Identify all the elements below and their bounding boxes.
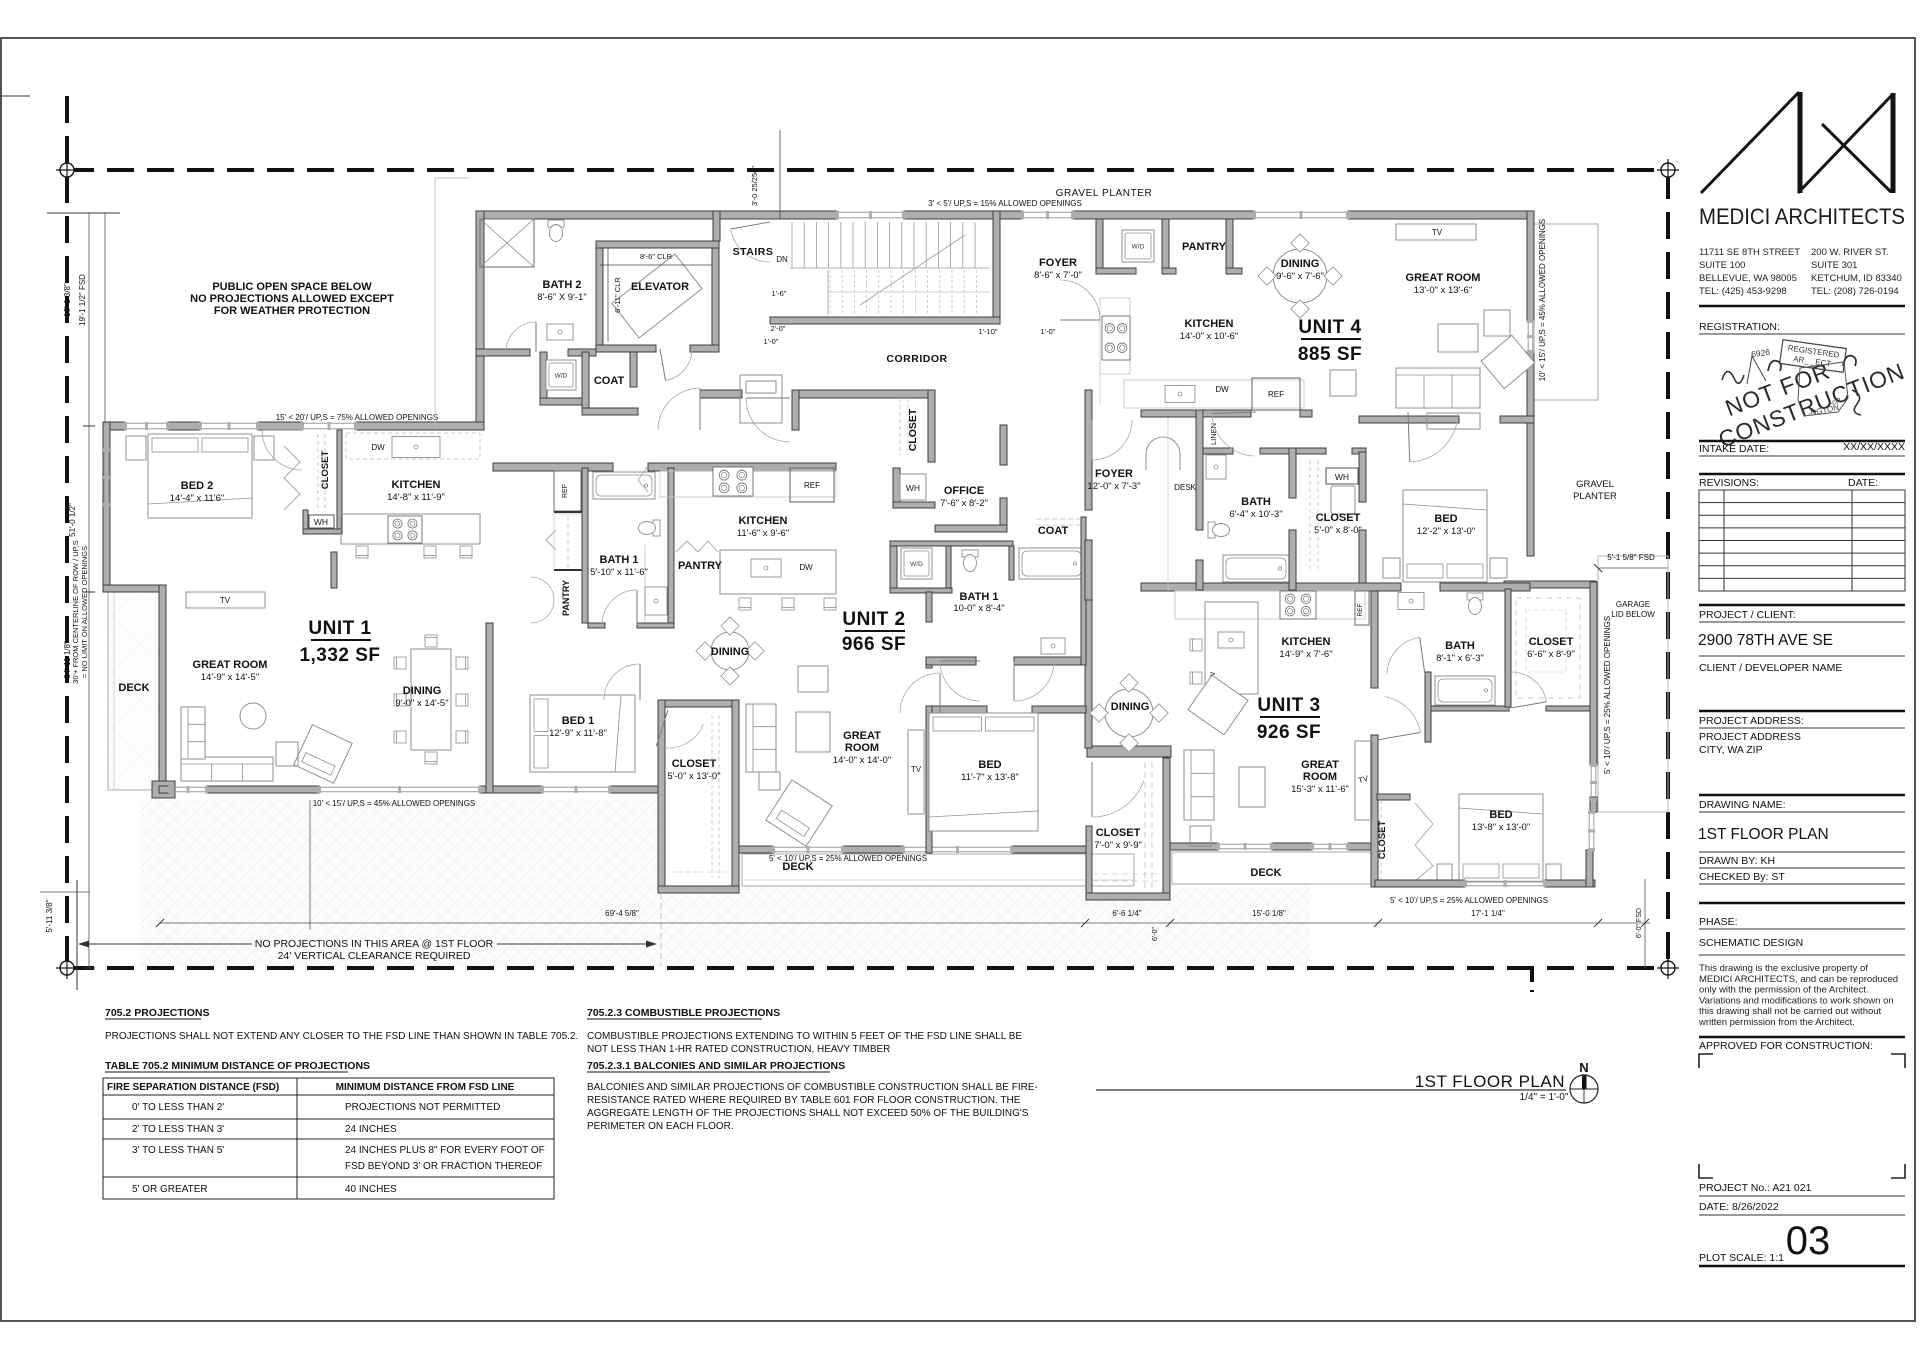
svg-text:8'-6" X 9'-1": 8'-6" X 9'-1" <box>537 292 586 303</box>
svg-text:COMBUSTIBLE PROJECTIONS EXTEND: COMBUSTIBLE PROJECTIONS EXTENDING TO WIT… <box>587 1031 1022 1042</box>
svg-text:FSD BEYOND 3' OR FRACTION THER: FSD BEYOND 3' OR FRACTION THEREOF <box>345 1161 542 1172</box>
svg-text:BATH: BATH <box>1445 640 1475 652</box>
svg-text:5'-11 3/8": 5'-11 3/8" <box>45 899 54 932</box>
svg-text:PANTRY: PANTRY <box>1182 241 1227 253</box>
svg-text:PROJECT No.: A21 021: PROJECT No.: A21 021 <box>1699 1182 1812 1194</box>
svg-text:14'-9" x 7'-6": 14'-9" x 7'-6" <box>1279 649 1332 660</box>
svg-text:BALCONIES AND SIMILAR PROJECTI: BALCONIES AND SIMILAR PROJECTIONS OF COM… <box>587 1082 1038 1093</box>
svg-text:MEDICI ARCHITECTS, and can be: MEDICI ARCHITECTS, and can be reproduced <box>1699 974 1898 985</box>
svg-text:DW: DW <box>799 563 813 572</box>
svg-text:TEL: (425) 453-9298: TEL: (425) 453-9298 <box>1699 286 1787 297</box>
svg-text:1'-0": 1'-0" <box>1041 327 1056 336</box>
svg-text:9'-6" x 7'-6": 9'-6" x 7'-6" <box>1276 271 1324 282</box>
svg-text:GRAVEL PLANTER: GRAVEL PLANTER <box>1056 188 1153 199</box>
svg-text:3' < 5'/ UP,S = 15% ALLOWED OP: 3' < 5'/ UP,S = 15% ALLOWED OPENINGS <box>928 199 1082 208</box>
svg-text:OFFICE: OFFICE <box>944 485 984 497</box>
svg-text:UNIT 4: UNIT 4 <box>1298 317 1361 338</box>
svg-text:5' OR GREATER: 5' OR GREATER <box>132 1184 208 1195</box>
svg-text:CLIENT / DEVELOPER NAME: CLIENT / DEVELOPER NAME <box>1699 662 1842 674</box>
svg-text:7'-6" x 8'-2": 7'-6" x 8'-2" <box>940 498 988 509</box>
svg-text:CLOSET: CLOSET <box>672 758 717 770</box>
svg-text:NOT LESS THAN 1-HR RATED CONST: NOT LESS THAN 1-HR RATED CONSTRUCTION, H… <box>587 1044 890 1055</box>
svg-text:DW: DW <box>371 443 385 452</box>
svg-text:PANTRY: PANTRY <box>678 560 723 572</box>
svg-text:INTAKE DATE:: INTAKE DATE: <box>1699 443 1769 455</box>
svg-text:AGGREGATE LENGTH OF THE PROJEC: AGGREGATE LENGTH OF THE PROJECTIONS SHAL… <box>587 1108 1029 1119</box>
svg-text:PHASE:: PHASE: <box>1699 916 1738 928</box>
svg-text:1ST FLOOR PLAN: 1ST FLOOR PLAN <box>1698 826 1829 843</box>
svg-text:40 INCHES: 40 INCHES <box>345 1184 397 1195</box>
svg-text:LID BELOW: LID BELOW <box>1611 610 1655 619</box>
svg-text:KITCHEN: KITCHEN <box>1282 636 1331 648</box>
svg-text:written permission from the Ar: written permission from the Architect. <box>1698 1017 1855 1028</box>
svg-text:DATE:: DATE: <box>1848 477 1878 489</box>
svg-text:GRAVEL: GRAVEL <box>1576 479 1614 490</box>
svg-text:PROJECT / CLIENT:: PROJECT / CLIENT: <box>1699 609 1796 621</box>
svg-text:24' VERTICAL CLEARANCE REQUIRE: 24' VERTICAL CLEARANCE REQUIRED <box>278 950 471 962</box>
svg-text:This drawing is the exclusive: This drawing is the exclusive property o… <box>1699 963 1868 974</box>
svg-text:14'-8" x 11'-9": 14'-8" x 11'-9" <box>387 492 445 503</box>
svg-text:6'-6" x 8'-9": 6'-6" x 8'-9" <box>1527 649 1575 660</box>
svg-text:BATH 1: BATH 1 <box>960 591 999 603</box>
svg-text:12'-0" x 7'-3": 12'-0" x 7'-3" <box>1087 481 1140 492</box>
svg-text:24 INCHES PLUS 8" FOR EVERY FO: 24 INCHES PLUS 8" FOR EVERY FOOT OF <box>345 1145 545 1156</box>
svg-text:2900 78TH AVE SE: 2900 78TH AVE SE <box>1698 632 1833 649</box>
svg-text:966 SF: 966 SF <box>842 634 906 655</box>
svg-text:UNIT 1: UNIT 1 <box>308 618 371 639</box>
svg-text:Variations and modifications t: Variations and modifications to work sho… <box>1699 995 1894 1006</box>
svg-text:3'-0 25/256": 3'-0 25/256" <box>750 166 759 206</box>
svg-text:12'-9" x 11'-8": 12'-9" x 11'-8" <box>549 728 607 739</box>
svg-text:17'-1 1/4": 17'-1 1/4" <box>1471 909 1505 918</box>
svg-text:10-0" x 8'-4": 10-0" x 8'-4" <box>953 603 1004 614</box>
svg-text:= NO LIMIT ON ALLOWED OPENINGS: = NO LIMIT ON ALLOWED OPENINGS <box>80 546 89 678</box>
svg-text:GARAGE: GARAGE <box>1616 600 1650 609</box>
svg-text:15' < 20'/ UP,S = 75% ALLOWED: 15' < 20'/ UP,S = 75% ALLOWED OPENINGS <box>276 413 439 422</box>
svg-text:5' < 10'/ UP,S = 25% ALLOWED O: 5' < 10'/ UP,S = 25% ALLOWED OPENINGS <box>1390 896 1548 905</box>
svg-text:W/D: W/D <box>910 561 923 568</box>
svg-text:FOYER: FOYER <box>1039 257 1077 269</box>
svg-text:UNIT 2: UNIT 2 <box>842 609 905 630</box>
svg-text:15'-0 1/8": 15'-0 1/8" <box>1252 909 1286 918</box>
svg-text:SUITE 301: SUITE 301 <box>1811 260 1857 271</box>
svg-text:WH: WH <box>314 517 328 527</box>
svg-text:BED: BED <box>978 759 1001 771</box>
svg-text:ROOM: ROOM <box>845 742 879 754</box>
svg-text:MINIMUM DISTANCE FROM FSD LINE: MINIMUM DISTANCE FROM FSD LINE <box>336 1082 515 1093</box>
svg-text:705.2.3 COMBUSTIBLE PROJECTION: 705.2.3 COMBUSTIBLE PROJECTIONS <box>587 1007 780 1019</box>
svg-text:PERIMETER ON EACH FLOOR.: PERIMETER ON EACH FLOOR. <box>587 1121 734 1132</box>
svg-text:REF: REF <box>562 484 569 498</box>
svg-text:PROJECTIONS NOT PERMITTED: PROJECTIONS NOT PERMITTED <box>345 1102 500 1113</box>
svg-text:14'-9" x 14'-5": 14'-9" x 14'-5" <box>201 672 259 683</box>
svg-text:only with the permission of th: only with the permission of the Architec… <box>1699 985 1869 996</box>
svg-text:CLOSET: CLOSET <box>907 408 919 451</box>
svg-text:6'-6 1/4": 6'-6 1/4" <box>1112 909 1141 918</box>
svg-text:5'-1 5/8" FSD: 5'-1 5/8" FSD <box>1607 553 1655 562</box>
svg-text:BELLEVUE, WA 98005: BELLEVUE, WA 98005 <box>1699 273 1797 284</box>
svg-text:CLOSET: CLOSET <box>320 451 331 490</box>
svg-text:PROJECT ADDRESS: PROJECT ADDRESS <box>1699 731 1801 743</box>
svg-text:16'-1 3/8": 16'-1 3/8" <box>63 283 72 317</box>
svg-text:13'-0" x 13'-6": 13'-0" x 13'-6" <box>1414 285 1472 296</box>
svg-text:APPROVED FOR CONSTRUCTION:: APPROVED FOR CONSTRUCTION: <box>1699 1040 1873 1052</box>
svg-text:11711 SE 8TH STREET: 11711 SE 8TH STREET <box>1699 247 1800 258</box>
svg-text:REF: REF <box>1268 390 1284 399</box>
svg-text:DINING: DINING <box>403 685 442 697</box>
svg-text:CITY, WA ZIP: CITY, WA ZIP <box>1699 744 1763 756</box>
svg-text:TV: TV <box>1432 228 1443 237</box>
svg-text:BATH: BATH <box>1241 496 1271 508</box>
svg-text:MEDICI ARCHITECTS: MEDICI ARCHITECTS <box>1699 204 1905 229</box>
svg-text:15'-3" x 11'-6": 15'-3" x 11'-6" <box>1291 784 1349 795</box>
svg-text:COAT: COAT <box>594 375 625 387</box>
svg-text:14'-0" x 10'-6": 14'-0" x 10'-6" <box>1180 331 1238 342</box>
svg-text:REF: REF <box>1357 603 1364 616</box>
svg-text:STAIRS: STAIRS <box>733 246 774 258</box>
svg-text:NO PROJECTIONS ALLOWED EXCEPT: NO PROJECTIONS ALLOWED EXCEPT <box>190 293 394 305</box>
svg-text:10' < 15'/ UP,S = 45% ALLOWED: 10' < 15'/ UP,S = 45% ALLOWED OPENINGS <box>313 799 476 808</box>
svg-text:SUITE 100: SUITE 100 <box>1699 260 1745 271</box>
svg-text:DRAWING NAME:: DRAWING NAME: <box>1699 799 1786 811</box>
svg-text:LINEN: LINEN <box>1209 423 1218 445</box>
svg-text:KITCHEN: KITCHEN <box>392 479 441 491</box>
svg-text:8'-1" x 6'-3": 8'-1" x 6'-3" <box>1436 653 1484 664</box>
svg-text:ELEVATOR: ELEVATOR <box>631 281 689 293</box>
svg-text:9'-0" x 14'-5": 9'-0" x 14'-5" <box>395 698 448 709</box>
svg-text:5'-10" x 11'-6": 5'-10" x 11'-6" <box>590 567 648 578</box>
svg-text:5'-0" x 8'-0": 5'-0" x 8'-0" <box>1314 525 1362 536</box>
svg-text:12'-2" x 13'-0": 12'-2" x 13'-0" <box>1417 526 1475 537</box>
svg-text:1ST FLOOR PLAN: 1ST FLOOR PLAN <box>1415 1072 1565 1091</box>
svg-text:PROJECT ADDRESS:: PROJECT ADDRESS: <box>1699 715 1804 727</box>
svg-text:this drawing shall not be carr: this drawing shall not be carried out wi… <box>1699 1006 1882 1017</box>
svg-text:FOYER: FOYER <box>1095 468 1133 480</box>
svg-text:03: 03 <box>1786 1219 1831 1263</box>
svg-text:CLOSET: CLOSET <box>1377 821 1388 860</box>
svg-text:UNIT 3: UNIT 3 <box>1257 695 1320 716</box>
svg-text:6'-4" x 10'-3": 6'-4" x 10'-3" <box>1229 509 1282 520</box>
svg-text:FOR WEATHER PROTECTION: FOR WEATHER PROTECTION <box>214 305 370 317</box>
svg-text:DW: DW <box>1215 385 1229 394</box>
svg-text:1/4" = 1'-0": 1/4" = 1'-0" <box>1520 1092 1569 1103</box>
svg-text:8'-6" CLR: 8'-6" CLR <box>640 252 673 261</box>
svg-text:24 INCHES: 24 INCHES <box>345 1124 397 1135</box>
svg-text:REF: REF <box>804 481 820 490</box>
svg-text:GREAT ROOM: GREAT ROOM <box>193 659 268 671</box>
svg-text:CLOSET: CLOSET <box>1316 512 1361 524</box>
svg-text:1'-6": 1'-6" <box>772 289 787 298</box>
svg-text:TV: TV <box>911 765 922 774</box>
svg-text:19'-1 1/2" FSD: 19'-1 1/2" FSD <box>78 274 87 326</box>
svg-text:RESISTANCE RATED WHERE REQUIRE: RESISTANCE RATED WHERE REQUIRED BY TABLE… <box>587 1095 1021 1106</box>
svg-text:PROJECTIONS SHALL NOT EXTEND A: PROJECTIONS SHALL NOT EXTEND ANY CLOSER … <box>105 1031 578 1042</box>
svg-text:PUBLIC OPEN SPACE BELOW: PUBLIC OPEN SPACE BELOW <box>212 281 372 293</box>
svg-text:KITCHEN: KITCHEN <box>1185 318 1234 330</box>
svg-text:5' < 10'/ UP,S = 25% ALLOWED O: 5' < 10'/ UP,S = 25% ALLOWED OPENINGS <box>1603 616 1612 774</box>
svg-text:BED: BED <box>1434 513 1457 525</box>
svg-text:COAT: COAT <box>1038 525 1069 537</box>
svg-text:REVISIONS:: REVISIONS: <box>1699 477 1759 489</box>
svg-text:6'-11" CLR: 6'-11" CLR <box>613 277 622 313</box>
svg-text:DINING: DINING <box>1281 258 1320 270</box>
svg-text:0' TO LESS THAN 2': 0' TO LESS THAN 2' <box>132 1102 224 1113</box>
svg-text:6'-0": 6'-0" <box>1152 927 1159 941</box>
svg-text:DECK: DECK <box>1250 867 1281 879</box>
svg-text:14'-0" x 14'-0": 14'-0" x 14'-0" <box>833 755 891 766</box>
svg-text:BED: BED <box>1489 809 1512 821</box>
svg-text:DESK: DESK <box>1174 483 1196 492</box>
svg-text:DRAWN BY: KH: DRAWN BY: KH <box>1699 855 1775 867</box>
svg-text:BED 1: BED 1 <box>562 715 594 727</box>
svg-text:30'+ FROM CENTERLINE OF ROW /: 30'+ FROM CENTERLINE OF ROW / UP,S <box>71 540 80 684</box>
svg-text:GREAT: GREAT <box>1301 759 1339 771</box>
svg-text:DINING: DINING <box>1111 701 1150 713</box>
svg-text:CORRIDOR: CORRIDOR <box>886 353 947 365</box>
svg-text:WH: WH <box>906 483 920 493</box>
svg-text:2' TO LESS THAN 3': 2' TO LESS THAN 3' <box>132 1124 224 1135</box>
svg-text:NO PROJECTIONS IN THIS AREA @: NO PROJECTIONS IN THIS AREA @ 1ST FLOOR <box>255 938 494 950</box>
svg-text:BATH 2: BATH 2 <box>543 279 582 291</box>
svg-text:69'-4 5/8": 69'-4 5/8" <box>605 909 639 918</box>
svg-text:200 W. RIVER ST.: 200 W. RIVER ST. <box>1811 247 1889 258</box>
svg-text:GREAT ROOM: GREAT ROOM <box>1406 272 1481 284</box>
svg-text:11'-6" x 9'-6": 11'-6" x 9'-6" <box>737 528 789 539</box>
svg-text:1'-10": 1'-10" <box>978 327 997 336</box>
svg-text:BATH 1: BATH 1 <box>600 554 639 566</box>
svg-text:13'-8" x 13'-0": 13'-8" x 13'-0" <box>1472 822 1530 833</box>
svg-text:5'-0" x 13'-0": 5'-0" x 13'-0" <box>667 771 720 782</box>
svg-text:SCHEMATIC DESIGN: SCHEMATIC DESIGN <box>1699 937 1803 949</box>
svg-text:W/D: W/D <box>555 373 568 380</box>
svg-text:N: N <box>1579 1060 1588 1075</box>
svg-text:CHECKED By: ST: CHECKED By: ST <box>1699 871 1785 883</box>
svg-text:GREAT: GREAT <box>843 730 881 742</box>
svg-text:XX/XX/XXXX: XX/XX/XXXX <box>1843 441 1905 453</box>
svg-text:6'-0" FSD: 6'-0" FSD <box>1636 908 1643 938</box>
svg-text:926 SF: 926 SF <box>1257 722 1321 743</box>
svg-text:BED 2: BED 2 <box>181 480 213 492</box>
svg-text:PANTRY: PANTRY <box>561 580 571 616</box>
svg-text:PLOT SCALE: 1:1: PLOT SCALE: 1:1 <box>1699 1252 1784 1264</box>
svg-text:14'-4" x 11'6": 14'-4" x 11'6" <box>170 493 225 504</box>
svg-text:10' < 15'/ UP,S = 45% ALLOWED: 10' < 15'/ UP,S = 45% ALLOWED OPENINGS <box>1538 219 1547 382</box>
svg-text:CLOSET: CLOSET <box>1096 827 1141 839</box>
svg-text:DATE: 8/26/2022: DATE: 8/26/2022 <box>1699 1201 1779 1213</box>
svg-text:1'-0": 1'-0" <box>764 337 779 346</box>
svg-text:W/D: W/D <box>1132 244 1145 251</box>
svg-text:3' TO LESS THAN 5': 3' TO LESS THAN 5' <box>132 1145 224 1156</box>
svg-text:705.2.3.1 BALCONIES AND SIMILA: 705.2.3.1 BALCONIES AND SIMILAR PROJECTI… <box>587 1060 845 1072</box>
svg-text:8'-6" x 7'-0": 8'-6" x 7'-0" <box>1034 270 1082 281</box>
svg-text:705.2 PROJECTIONS: 705.2 PROJECTIONS <box>105 1007 209 1019</box>
svg-text:TABLE 705.2 MINIMUM DISTANCE O: TABLE 705.2 MINIMUM DISTANCE OF PROJECTI… <box>105 1060 370 1072</box>
svg-text:DINING: DINING <box>711 646 750 658</box>
svg-text:51'-0 1/2": 51'-0 1/2" <box>68 503 77 537</box>
svg-text:5' < 10'/ UP,S = 25% ALLOWED O: 5' < 10'/ UP,S = 25% ALLOWED OPENINGS <box>769 854 927 863</box>
svg-text:1,332 SF: 1,332 SF <box>299 645 380 666</box>
svg-text:WH: WH <box>1335 472 1349 482</box>
svg-text:KITCHEN: KITCHEN <box>739 515 788 527</box>
svg-text:CLOSET: CLOSET <box>1529 636 1574 648</box>
svg-text:11'-7" x 13'-8": 11'-7" x 13'-8" <box>961 772 1019 783</box>
svg-text:TEL: (208) 726-0194: TEL: (208) 726-0194 <box>1811 286 1899 297</box>
svg-text:REGISTRATION:: REGISTRATION: <box>1699 321 1780 333</box>
svg-text:2'-0": 2'-0" <box>771 324 786 333</box>
svg-text:ROOM: ROOM <box>1303 771 1337 783</box>
svg-text:DECK: DECK <box>118 682 149 694</box>
svg-text:PLANTER: PLANTER <box>1573 491 1617 502</box>
svg-text:TV: TV <box>220 596 231 605</box>
svg-text:7'-0" x 9'-9": 7'-0" x 9'-9" <box>1094 840 1142 851</box>
svg-text:KETCHUM, ID 83340: KETCHUM, ID 83340 <box>1811 273 1902 284</box>
svg-text:885 SF: 885 SF <box>1298 344 1362 365</box>
svg-text:FIRE SEPARATION DISTANCE (FSD): FIRE SEPARATION DISTANCE (FSD) <box>107 1082 279 1093</box>
svg-text:DN: DN <box>776 255 788 264</box>
